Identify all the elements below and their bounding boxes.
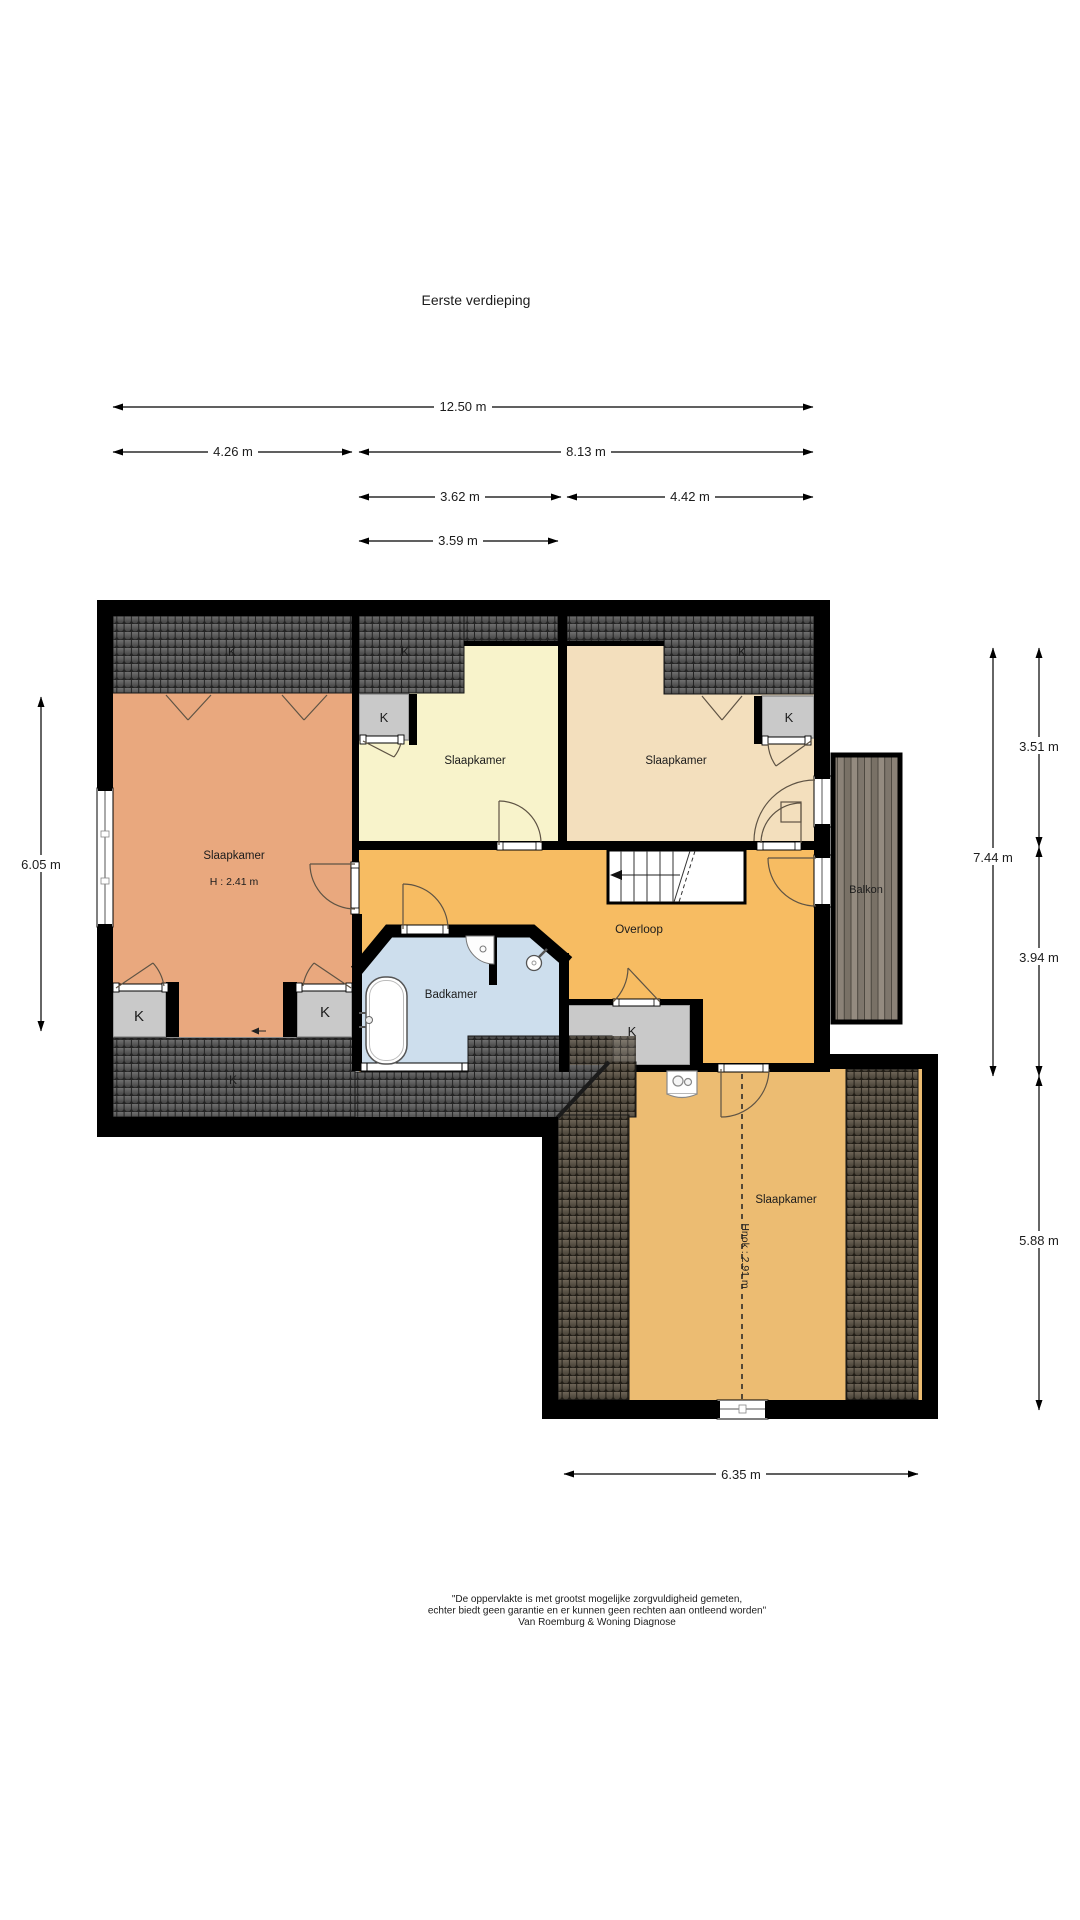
svg-text:3.51 m: 3.51 m bbox=[1019, 739, 1059, 754]
svg-text:Slaapkamer: Slaapkamer bbox=[645, 755, 707, 767]
svg-text:"De oppervlakte is met grootst: "De oppervlakte is met grootst mogelijke… bbox=[452, 1594, 742, 1605]
svg-text:K: K bbox=[628, 1024, 637, 1039]
svg-text:K: K bbox=[401, 645, 409, 659]
svg-text:12.50 m: 12.50 m bbox=[440, 399, 487, 414]
svg-text:Overloop: Overloop bbox=[615, 922, 663, 936]
svg-text:K: K bbox=[229, 1073, 237, 1087]
svg-text:4.42 m: 4.42 m bbox=[670, 489, 710, 504]
svg-text:Slaapkamer: Slaapkamer bbox=[444, 755, 506, 767]
svg-text:Van Roemburg & Woning Diagnose: Van Roemburg & Woning Diagnose bbox=[518, 1617, 676, 1628]
svg-text:K: K bbox=[738, 645, 746, 659]
svg-text:Balkon: Balkon bbox=[849, 884, 883, 896]
svg-text:K: K bbox=[380, 710, 389, 725]
svg-text:3.59 m: 3.59 m bbox=[438, 533, 478, 548]
svg-text:3.62 m: 3.62 m bbox=[440, 489, 480, 504]
svg-text:echter biedt geen garantie en: echter biedt geen garantie en er kunnen … bbox=[428, 1606, 767, 1617]
svg-text:3.94 m: 3.94 m bbox=[1019, 950, 1059, 965]
svg-text:8.13 m: 8.13 m bbox=[566, 444, 606, 459]
svg-text:K: K bbox=[320, 1004, 330, 1021]
svg-text:Badkamer: Badkamer bbox=[425, 989, 478, 1001]
svg-text:H : 2.41 m: H : 2.41 m bbox=[210, 876, 259, 888]
svg-text:6.35 m: 6.35 m bbox=[721, 1467, 761, 1482]
svg-text:Hnok : 2.91 m: Hnok : 2.91 m bbox=[739, 1223, 751, 1289]
svg-text:Slaapkamer: Slaapkamer bbox=[755, 1194, 817, 1206]
svg-text:7.44 m: 7.44 m bbox=[973, 850, 1013, 865]
svg-text:K: K bbox=[134, 1008, 144, 1025]
svg-text:K: K bbox=[785, 710, 794, 725]
svg-text:Eerste verdieping: Eerste verdieping bbox=[422, 292, 531, 308]
svg-text:4.26 m: 4.26 m bbox=[213, 444, 253, 459]
svg-text:6.05 m: 6.05 m bbox=[21, 857, 61, 872]
svg-text:Slaapkamer: Slaapkamer bbox=[203, 850, 265, 862]
svg-text:K: K bbox=[228, 645, 236, 659]
svg-text:5.88 m: 5.88 m bbox=[1019, 1233, 1059, 1248]
